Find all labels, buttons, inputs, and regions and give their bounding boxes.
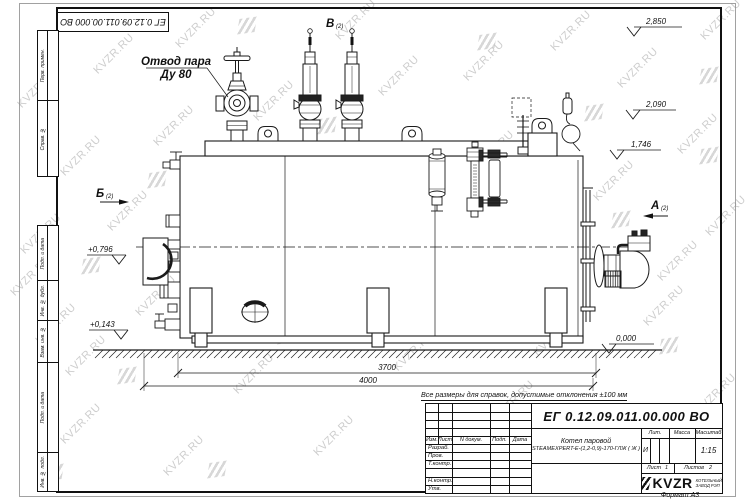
margin-col-label: Подп. и дата: [40, 392, 46, 423]
safety-valves: [294, 29, 363, 141]
tb-header-list: Лист: [438, 436, 452, 444]
tb-row-tkontr: Т.контр.: [426, 460, 454, 468]
sheet-value: 1: [665, 465, 668, 471]
tb-header-data: Дата: [509, 436, 531, 444]
steam-outlet-callout: Отвод пара Ду 80: [141, 56, 228, 97]
drawing-sheet: KVZR.RUKVZR.RUKVZR.RUKVZR.RUKVZR.RUKVZR.…: [0, 0, 750, 500]
dim-4000-label: 4000: [359, 376, 377, 385]
view-b-label: Б: [96, 188, 104, 200]
elevation-1746: 1,746: [631, 140, 652, 149]
tb-row-prov: Пров.: [426, 452, 454, 460]
product-name-line1: Котел паровой: [561, 438, 611, 447]
kvzr-logo-text: KVZR: [653, 475, 693, 491]
kvzr-logo-subtext: КОТЕЛЬНЫЙ ЗАВОД РЭП: [696, 478, 722, 489]
title-block: Изм. Лист N докум. Подп. Дата Разраб. Пр…: [425, 403, 723, 494]
kvzr-logo-sub2: ЗАВОД РЭП: [696, 483, 722, 488]
reference-note: Все размеры для справок, допустимые откл…: [421, 390, 627, 399]
margin-col-label: Справ. №: [40, 127, 46, 150]
lifting-lugs: [258, 119, 552, 142]
steam-outlet-text-1: Отвод пара: [141, 56, 212, 68]
tb-row-nkontr: Н.контр.: [426, 477, 454, 485]
tb-header-ndokum: N докум.: [452, 436, 490, 444]
tb-header-izm: Изм.: [426, 436, 438, 444]
margin-col-inv-podl: Инв. № подл.: [37, 452, 59, 492]
tb-lit-value: И: [641, 438, 650, 463]
burner: [594, 230, 650, 288]
tb-scale-label: Масштаб: [695, 428, 722, 438]
ground: [93, 350, 662, 358]
margin-col-label: Взам. инв. №: [40, 326, 46, 358]
tb-row-utv: Утв.: [426, 485, 454, 493]
product-name-line2: STEAMEXPERT-Е-(1,2-0,9)-170-ГЛЖ ( Ж ): [532, 446, 640, 453]
tb-scale-value: 1:15: [695, 438, 722, 463]
margin-col-label: Подп. и дата: [40, 238, 46, 269]
tb-row-razrab: Разраб.: [426, 444, 454, 452]
margin-col-vzam-inv: Взам. инв. №: [37, 320, 59, 364]
elevation-0143: +0,143: [90, 320, 115, 329]
steam-outlet-valve: [216, 47, 258, 141]
margin-col-perv-primen: Перв. примен.: [37, 30, 59, 102]
sheets-value: 2: [709, 465, 712, 471]
tb-lit-label: Лит.: [641, 428, 669, 438]
margin-col-label: Инв. № подл.: [40, 456, 46, 488]
dimension-3700: 3700: [174, 353, 600, 378]
kvzr-logo-icon: [641, 477, 651, 490]
margin-col-sprav-no: Справ. №: [37, 100, 59, 177]
steam-outlet-text-2: Ду 80: [160, 69, 193, 81]
elevation-2090: 2,090: [645, 100, 667, 109]
view-a-ref: (2): [661, 206, 668, 212]
view-b-ref: (2): [106, 194, 113, 200]
margin-col-label: Перв. примен.: [40, 49, 46, 82]
tb-logo-cell: KVZR КОТЕЛЬНЫЙ ЗАВОД РЭП: [641, 473, 722, 493]
view-v-ref: (2): [336, 24, 343, 30]
repeat-designation-box: ЕГ 0.12.09.011.00.000 ВО: [57, 12, 169, 32]
dim-3700-label: 3700: [378, 363, 396, 372]
dimension-4000: 4000: [140, 353, 597, 391]
elevation-0000: 0,000: [616, 334, 637, 343]
tb-product-name: Котел паровой STEAMEXPERT-Е-(1,2-0,9)-17…: [531, 428, 641, 463]
tb-header-podp: Подп.: [490, 436, 509, 444]
margin-col-podp-data-2: Подп. и дата: [37, 362, 59, 454]
margin-col-inv-dubl: Инв. № дубл.: [37, 280, 59, 322]
view-a-label: А: [650, 200, 659, 212]
tb-mass-label: Масса: [669, 428, 695, 438]
elevation-0796: +0,796: [88, 245, 113, 254]
view-v-label: В: [326, 18, 334, 30]
reference-note-text: Все размеры для справок, допустимые откл…: [421, 390, 627, 401]
elevation-2850: 2,850: [645, 17, 667, 26]
repeat-designation-text: ЕГ 0.12.09.011.00.000 ВО: [60, 17, 166, 27]
tb-sheet-cell: Лист 1: [641, 463, 674, 473]
sheet-label: Лист: [647, 465, 661, 471]
margin-col-podp-data-1: Подп. и дата: [37, 225, 59, 282]
boiler-body: [136, 133, 634, 347]
sheets-label: Листов: [684, 465, 704, 471]
tb-sheets-cell: Листов 2: [674, 463, 722, 473]
format-label: Формат А3: [630, 492, 730, 499]
margin-col-label: Инв. № дубл.: [40, 285, 46, 316]
tb-designation: ЕГ 0.12.09.011.00.000 ВО: [531, 404, 722, 428]
burner-door-swing: [143, 238, 171, 285]
